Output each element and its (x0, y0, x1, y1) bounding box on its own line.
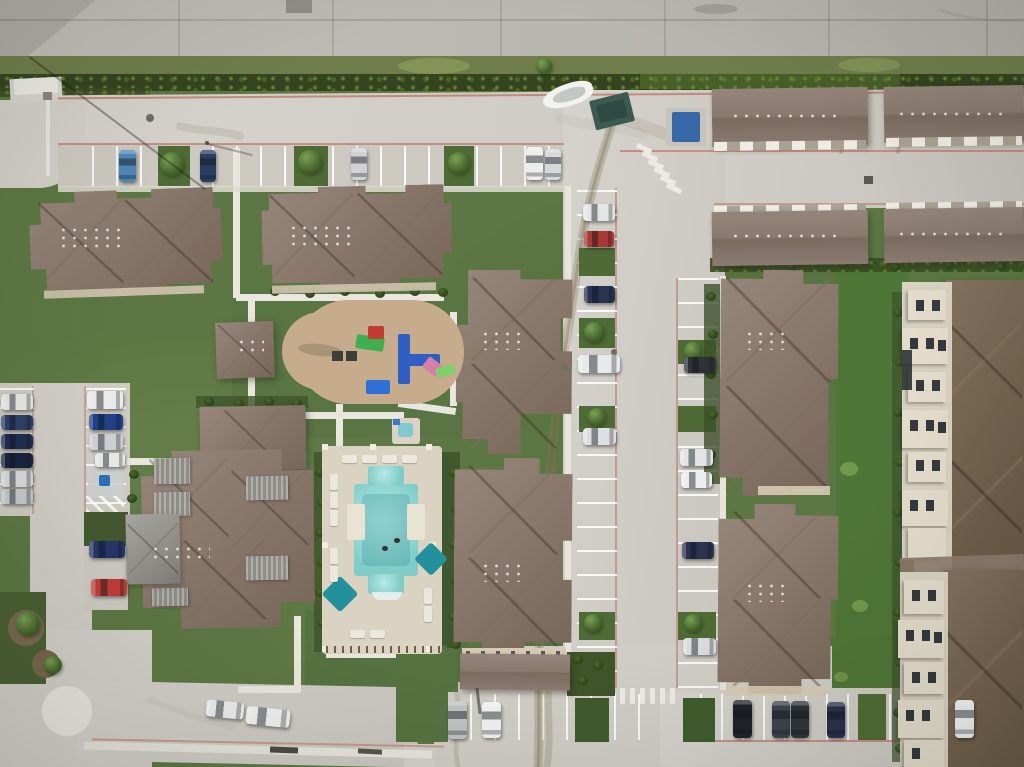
photo-vignette (0, 0, 1024, 767)
atmosphere-layer (0, 0, 1024, 767)
aerial-photo (0, 0, 1024, 767)
